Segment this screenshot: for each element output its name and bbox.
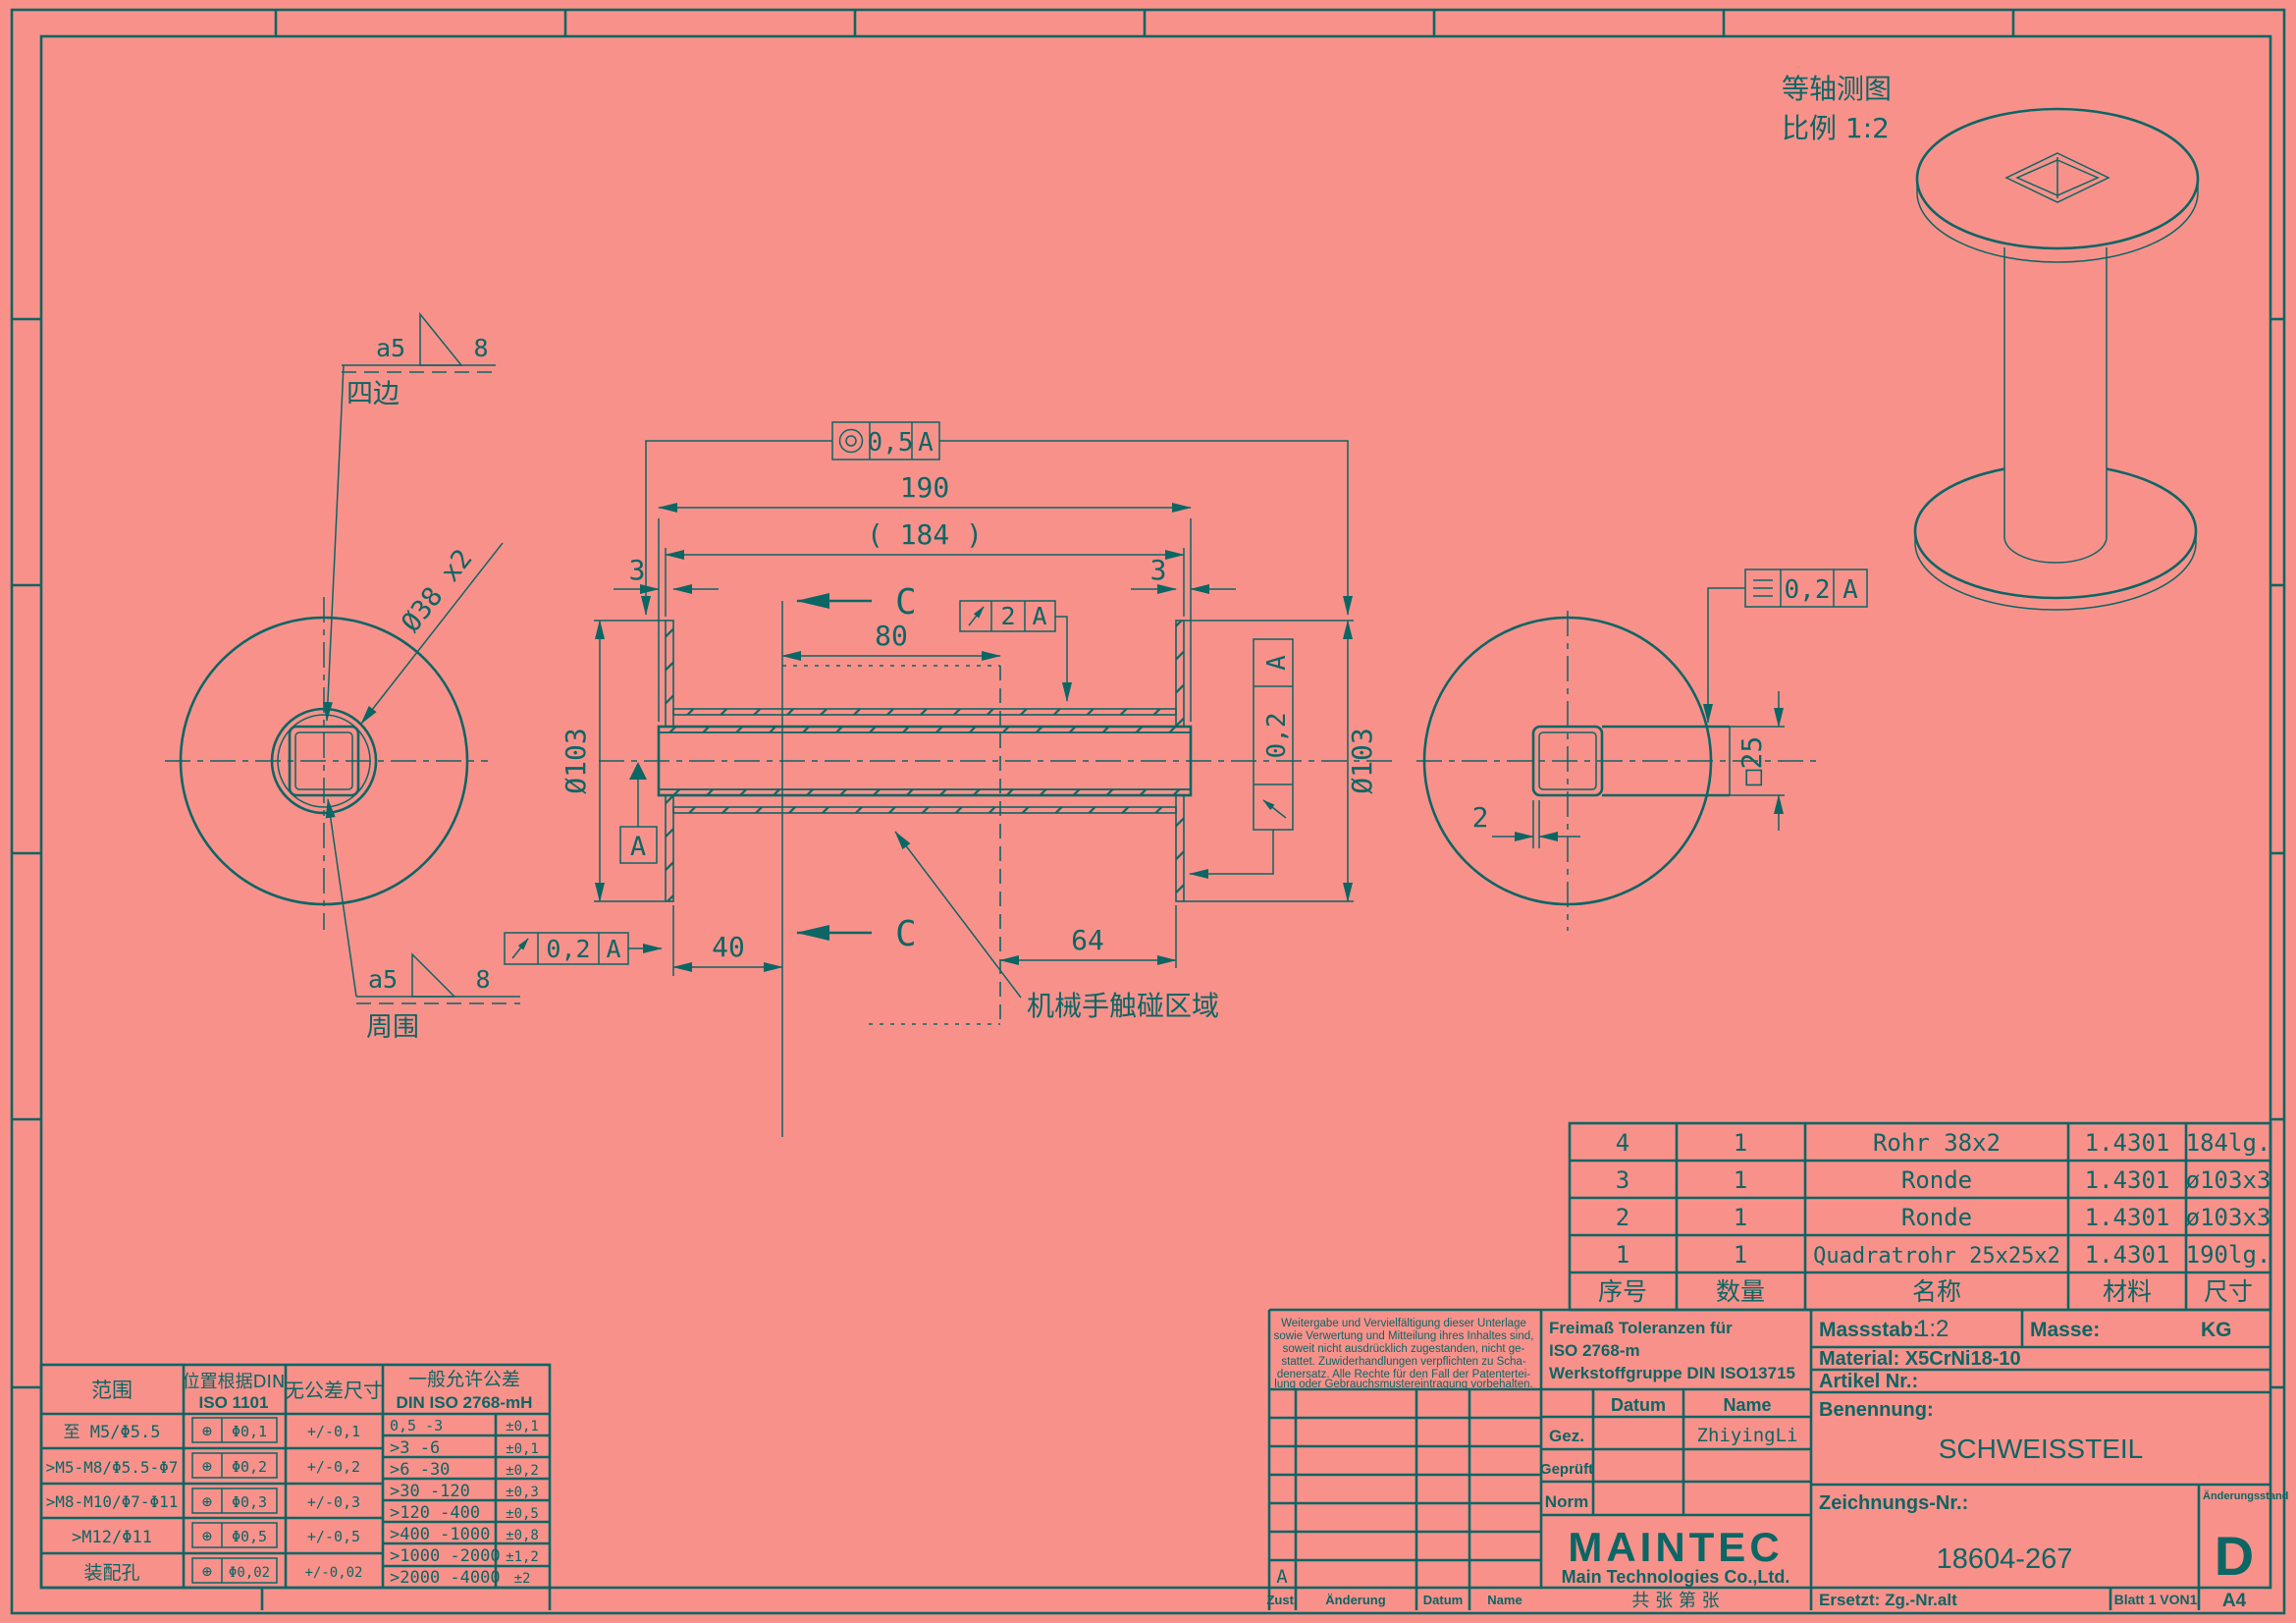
svg-text:Quadratrohr 25x25x2: Quadratrohr 25x25x2 xyxy=(1813,1244,2060,1269)
ersetzt: Ersetzt: Zg.-Nr.alt xyxy=(1819,1591,1957,1609)
gez-label: Gez. xyxy=(1549,1427,1584,1445)
tolerance-row: >M5-M8/Φ5.5-Φ7 ⊕ Φ0,2 +/-0,2 xyxy=(46,1453,361,1478)
svg-text:±1,2: ±1,2 xyxy=(506,1549,539,1565)
position-header-1: 位置根据DIN xyxy=(183,1372,286,1392)
company-name: MAINTEC xyxy=(1568,1524,1783,1570)
dim-64: 64 xyxy=(1000,905,1176,968)
svg-text:lung oder Gebrauchsmustereintr: lung oder Gebrauchsmustereintragung vorb… xyxy=(1274,1379,1532,1390)
svg-text:A: A xyxy=(918,428,934,458)
svg-text:□25: □25 xyxy=(1735,736,1768,786)
isometric-view: 等轴测图 比例 1:2 xyxy=(1782,73,2198,610)
tube-diameter-label: Ø38 x2 xyxy=(396,544,478,638)
svg-text:0,5: 0,5 xyxy=(868,428,914,458)
dim-square-25: □25 xyxy=(1735,691,1779,831)
tube-diameter-callout: Ø38 x2 xyxy=(361,543,503,724)
svg-text:A: A xyxy=(1842,575,1858,605)
range-header: 范围 xyxy=(91,1379,133,1402)
name-header: Name xyxy=(1723,1395,1771,1415)
svg-text:1.4301: 1.4301 xyxy=(2085,1129,2170,1157)
svg-text:>M12/Φ11: >M12/Φ11 xyxy=(72,1528,152,1547)
svg-text:Φ0,02: Φ0,02 xyxy=(229,1565,270,1581)
svg-text:40: 40 xyxy=(712,931,745,963)
part-title: SCHWEISSTEIL xyxy=(1939,1434,2143,1464)
svg-text:0,2: 0,2 xyxy=(546,935,590,963)
svg-text:Werkstoffgruppe DIN ISO13715: Werkstoffgruppe DIN ISO13715 xyxy=(1549,1364,1795,1382)
svg-text:>400 -1000: >400 -1000 xyxy=(390,1525,490,1544)
general-tol-header-2: DIN ISO 2768-mH xyxy=(397,1393,533,1412)
datum-label: A xyxy=(630,832,646,862)
company-sub: Main Technologies Co.,Ltd. xyxy=(1562,1567,1790,1587)
svg-text:>120 -400: >120 -400 xyxy=(390,1503,480,1523)
signature-table: Datum Name Gez. ZhiyingLi Geprüft Norm xyxy=(1540,1389,1811,1515)
svg-text:stattet. Zuwiderhandlungen ver: stattet. Zuwiderhandlungen verpflichten … xyxy=(1281,1356,1525,1368)
position-tolerance-icon: ⊕ xyxy=(202,1492,212,1512)
svg-text:>M5-M8/Φ5.5-Φ7: >M5-M8/Φ5.5-Φ7 xyxy=(46,1458,179,1477)
position-tolerance-icon: ⊕ xyxy=(202,1422,212,1441)
runout-arrow-icon xyxy=(512,939,528,958)
free-dim-header: 无公差尺寸 xyxy=(285,1379,383,1402)
fillet-weld-icon xyxy=(420,314,461,365)
tolerance-row: 装配孔 ⊕ Φ0,02 +/-0,02 xyxy=(83,1558,362,1584)
svg-text:Ronde: Ronde xyxy=(1901,1166,1972,1194)
svg-text:Φ0,5: Φ0,5 xyxy=(232,1528,267,1545)
weld-length: 8 xyxy=(473,334,488,362)
svg-text:Freimaß Toleranzen für: Freimaß Toleranzen für xyxy=(1549,1319,1733,1337)
svg-text:190lg.: 190lg. xyxy=(2186,1241,2271,1269)
datum-label: Datum xyxy=(1423,1593,1463,1607)
fcf-runout-2: 2 A xyxy=(960,601,1067,701)
svg-text:2: 2 xyxy=(1616,1204,1629,1231)
general-tol-header-1: 一般允许公差 xyxy=(408,1369,520,1390)
main-section-view: 190 ( 184 ) 3 3 80 C C 机械手触碰区域 xyxy=(505,422,1394,1137)
parts-row: 3 1 Ronde 1.4301 ø103x3 xyxy=(1616,1166,2271,1194)
svg-text:190: 190 xyxy=(900,471,950,504)
fcf-runout-right: 0,2 A xyxy=(1190,639,1293,874)
dim-184: ( 184 ) xyxy=(666,518,1184,617)
drawing-number: 18604-267 xyxy=(1937,1543,2073,1575)
touch-note: 机械手触碰区域 xyxy=(1027,990,1219,1022)
datum-triangle-icon xyxy=(629,762,647,780)
masse-label: Masse: xyxy=(2030,1319,2100,1341)
svg-text:1.4301: 1.4301 xyxy=(2085,1204,2170,1231)
aenderung-label: Änderung xyxy=(1325,1593,1385,1607)
datum-header: Datum xyxy=(1611,1395,1666,1415)
svg-text:64: 64 xyxy=(1071,924,1104,956)
svg-text:>M8-M10/Φ7-Φ11: >M8-M10/Φ7-Φ11 xyxy=(46,1492,179,1511)
svg-text:( 184 ): ( 184 ) xyxy=(867,518,983,551)
position-tolerance-icon: ⊕ xyxy=(202,1562,212,1582)
iso-caption-line1: 等轴测图 xyxy=(1782,73,1892,105)
right-view: □25 2 0,2 A xyxy=(1416,569,1867,931)
svg-text:Ronde: Ronde xyxy=(1901,1204,1972,1231)
weld-note: 四边 xyxy=(347,379,400,409)
dim-190: 190 xyxy=(659,471,1191,722)
dim-80: 80 xyxy=(782,620,1000,656)
svg-text:>6 -30: >6 -30 xyxy=(390,1460,450,1480)
notice-and-signature-block: Weitergabe und Vervielfältigung dieser U… xyxy=(1266,1310,1811,1611)
section-label-bottom: C xyxy=(895,914,917,954)
svg-text:尺寸: 尺寸 xyxy=(2204,1277,2253,1306)
svg-text:±0,2: ±0,2 xyxy=(506,1463,539,1479)
svg-text:2: 2 xyxy=(1472,801,1489,834)
tolerance-row: >M12/Φ11 ⊕ Φ0,5 +/-0,5 xyxy=(72,1523,360,1547)
svg-text:+/-0,2: +/-0,2 xyxy=(307,1458,360,1476)
svg-text:ø103x3: ø103x3 xyxy=(2186,1166,2271,1194)
svg-text:Ø103: Ø103 xyxy=(560,728,592,793)
sheets-note: 共 张 第 张 xyxy=(1631,1591,1719,1611)
svg-text:1: 1 xyxy=(1734,1166,1747,1194)
svg-text:Φ0,3: Φ0,3 xyxy=(232,1493,267,1511)
gez-name: ZhiyingLi xyxy=(1697,1425,1798,1446)
svg-text:Rohr 38x2: Rohr 38x2 xyxy=(1873,1129,2001,1157)
name-label: Name xyxy=(1487,1593,1522,1607)
dim-wall-2: 2 xyxy=(1472,800,1580,848)
engineering-drawing-sheet: 等轴测图 比例 1:2 a5 8 四边 Ø38 x2 xyxy=(0,0,2296,1623)
fcf-runout-bottom-left: 0,2 A xyxy=(505,933,662,964)
svg-text:数量: 数量 xyxy=(1716,1277,1765,1306)
position-tolerance-icon: ⊕ xyxy=(202,1527,212,1546)
revision-a: A xyxy=(1276,1566,1288,1588)
svg-text:装配孔: 装配孔 xyxy=(83,1562,139,1584)
svg-text:±0,3: ±0,3 xyxy=(506,1485,539,1500)
legal-notice: Weitergabe und Vervielfältigung dieser U… xyxy=(1274,1318,1534,1390)
svg-text:1.4301: 1.4301 xyxy=(2085,1166,2170,1194)
company-logo: MAINTEC Main Technologies Co.,Ltd. 共 张 第… xyxy=(1562,1524,1790,1611)
svg-text:3: 3 xyxy=(1150,554,1167,586)
symmetry-icon xyxy=(1753,580,1773,596)
parts-row: 4 1 Rohr 38x2 1.4301 184lg. xyxy=(1616,1129,2271,1157)
svg-text:+/-0,1: +/-0,1 xyxy=(307,1423,360,1440)
fillet-weld-icon xyxy=(412,954,454,997)
material: Material: X5CrNi18-10 xyxy=(1819,1348,2021,1370)
fcf-symmetry: 0,2 A xyxy=(1708,569,1867,723)
datum-a: A xyxy=(620,762,657,863)
revision-letter: D xyxy=(2215,1525,2254,1587)
section-label-top: C xyxy=(895,582,917,622)
svg-text:80: 80 xyxy=(875,620,908,652)
svg-text:±2: ±2 xyxy=(514,1571,531,1587)
svg-text:0,2: 0,2 xyxy=(1785,575,1831,605)
massstab-label: Massstab: xyxy=(1819,1319,1920,1341)
svg-text:序号: 序号 xyxy=(1598,1277,1647,1306)
blatt: Blatt 1 VON1 xyxy=(2114,1592,2198,1607)
iso-caption-line2: 比例 1:2 xyxy=(1782,112,1890,144)
tolerance-row: >M8-M10/Φ7-Φ11 ⊕ Φ0,3 +/-0,3 xyxy=(46,1488,361,1513)
svg-text:+/-0,3: +/-0,3 xyxy=(307,1493,360,1511)
weld-symbol-bottom: a5 8 周围 xyxy=(328,799,520,1043)
geprueft-label: Geprüft xyxy=(1540,1461,1593,1478)
svg-text:A: A xyxy=(606,935,620,963)
revision-table: A Zust. Änderung Datum Name xyxy=(1266,1389,1541,1610)
svg-text:±0,1: ±0,1 xyxy=(506,1441,539,1457)
massstab-value: 1:2 xyxy=(1916,1316,1949,1342)
freimass-tolerances: Freimaß Toleranzen für ISO 2768-m Werkst… xyxy=(1549,1319,1795,1382)
svg-text:0,5 -3: 0,5 -3 xyxy=(390,1417,443,1434)
tolerance-table: 范围 位置根据DIN ISO 1101 无公差尺寸 一般允许公差 DIN ISO… xyxy=(41,1365,550,1610)
tolerance-row: 至 M5/Φ5.5 ⊕ Φ0,1 +/-0,1 xyxy=(64,1418,361,1442)
svg-text:Φ0,1: Φ0,1 xyxy=(232,1423,267,1440)
position-tolerance-icon: ⊕ xyxy=(202,1457,212,1477)
svg-text:±0,1: ±0,1 xyxy=(506,1419,539,1434)
svg-text:1: 1 xyxy=(1734,1241,1747,1269)
zeichnung-label: Zeichnungs-Nr.: xyxy=(1819,1492,1968,1514)
svg-text:±0,8: ±0,8 xyxy=(506,1528,539,1543)
svg-text:soweit nicht ausdrücklich zuge: soweit nicht ausdrücklich zugestanden, n… xyxy=(1283,1343,1525,1355)
weld-size: a5 xyxy=(376,334,405,362)
svg-text:+/-0,5: +/-0,5 xyxy=(307,1528,360,1545)
svg-text:Ø103: Ø103 xyxy=(1346,728,1378,793)
general-tolerance-rows: 0,5 -3 ±0,1 >3 -6 ±0,1 >6 -30 ±0,2 >30 -… xyxy=(390,1417,539,1588)
svg-text:>2000 -4000: >2000 -4000 xyxy=(390,1568,501,1588)
svg-text:>3 -6: >3 -6 xyxy=(390,1438,440,1458)
dim-40: 40 xyxy=(673,905,782,976)
svg-text:1: 1 xyxy=(1616,1241,1629,1269)
format: A4 xyxy=(2222,1591,2247,1611)
svg-text:4: 4 xyxy=(1616,1129,1629,1157)
left-view: a5 8 四边 Ø38 x2 a5 8 周围 xyxy=(165,314,520,1043)
svg-text:±0,5: ±0,5 xyxy=(506,1506,539,1522)
benennung-label: Benennung: xyxy=(1819,1399,1934,1421)
svg-text:材料: 材料 xyxy=(2103,1277,2152,1306)
weld-size: a5 xyxy=(368,965,398,994)
svg-text:Φ0,2: Φ0,2 xyxy=(232,1458,267,1476)
svg-text:1.4301: 1.4301 xyxy=(2085,1241,2170,1269)
fcf-concentricity: 0,5 A xyxy=(646,422,1348,615)
svg-text:2: 2 xyxy=(1000,602,1015,630)
artikel-nr: Artikel Nr.: xyxy=(1819,1371,1918,1392)
svg-text:0,2: 0,2 xyxy=(1262,713,1292,759)
svg-text:至 M5/Φ5.5: 至 M5/Φ5.5 xyxy=(64,1423,161,1442)
robot-touch-zone: 机械手触碰区域 xyxy=(782,666,1219,1024)
svg-text:>1000 -2000: >1000 -2000 xyxy=(390,1546,501,1566)
svg-text:Weitergabe und Vervielfältigun: Weitergabe und Vervielfältigung dieser U… xyxy=(1281,1318,1526,1329)
svg-text:1: 1 xyxy=(1734,1204,1747,1231)
svg-text:+/-0,02: +/-0,02 xyxy=(304,1565,362,1581)
parts-table: 4 1 Rohr 38x2 1.4301 184lg. 3 1 Ronde 1.… xyxy=(1570,1123,2270,1310)
svg-text:3: 3 xyxy=(629,554,646,586)
svg-text:ø103x3: ø103x3 xyxy=(2186,1204,2271,1231)
aenderungsstand-label: Änderungsstand xyxy=(2203,1489,2288,1502)
parts-row: 1 1 Quadratrohr 25x25x2 1.4301 190lg. xyxy=(1616,1241,2271,1269)
svg-text:3: 3 xyxy=(1616,1166,1629,1194)
svg-text:>30 -120: >30 -120 xyxy=(390,1482,470,1501)
concentricity-icon xyxy=(840,430,863,453)
zust-label: Zust. xyxy=(1266,1593,1297,1607)
parts-row: 2 1 Ronde 1.4301 ø103x3 xyxy=(1616,1204,2271,1231)
weld-note: 周围 xyxy=(366,1012,419,1043)
svg-text:名称: 名称 xyxy=(1912,1277,1961,1306)
position-header-2: ISO 1101 xyxy=(199,1393,269,1412)
svg-text:184lg.: 184lg. xyxy=(2186,1129,2271,1157)
svg-text:sowie Verwertung und Mitteilun: sowie Verwertung und Mitteilung ihres In… xyxy=(1274,1330,1534,1342)
svg-text:A: A xyxy=(1032,602,1046,630)
masse-unit: KG xyxy=(2201,1319,2232,1341)
parts-header-row: 序号 数量 名称 材料 尺寸 xyxy=(1598,1277,2253,1306)
runout-arrow-icon xyxy=(1263,800,1286,818)
svg-text:ISO 2768-m: ISO 2768-m xyxy=(1549,1341,1640,1360)
svg-text:A: A xyxy=(1262,655,1292,671)
spool-shape xyxy=(1915,109,2198,610)
svg-text:1: 1 xyxy=(1734,1129,1747,1157)
runout-arrow-icon xyxy=(969,607,984,625)
weld-length: 8 xyxy=(475,965,490,994)
norm-label: Norm xyxy=(1545,1492,1588,1511)
